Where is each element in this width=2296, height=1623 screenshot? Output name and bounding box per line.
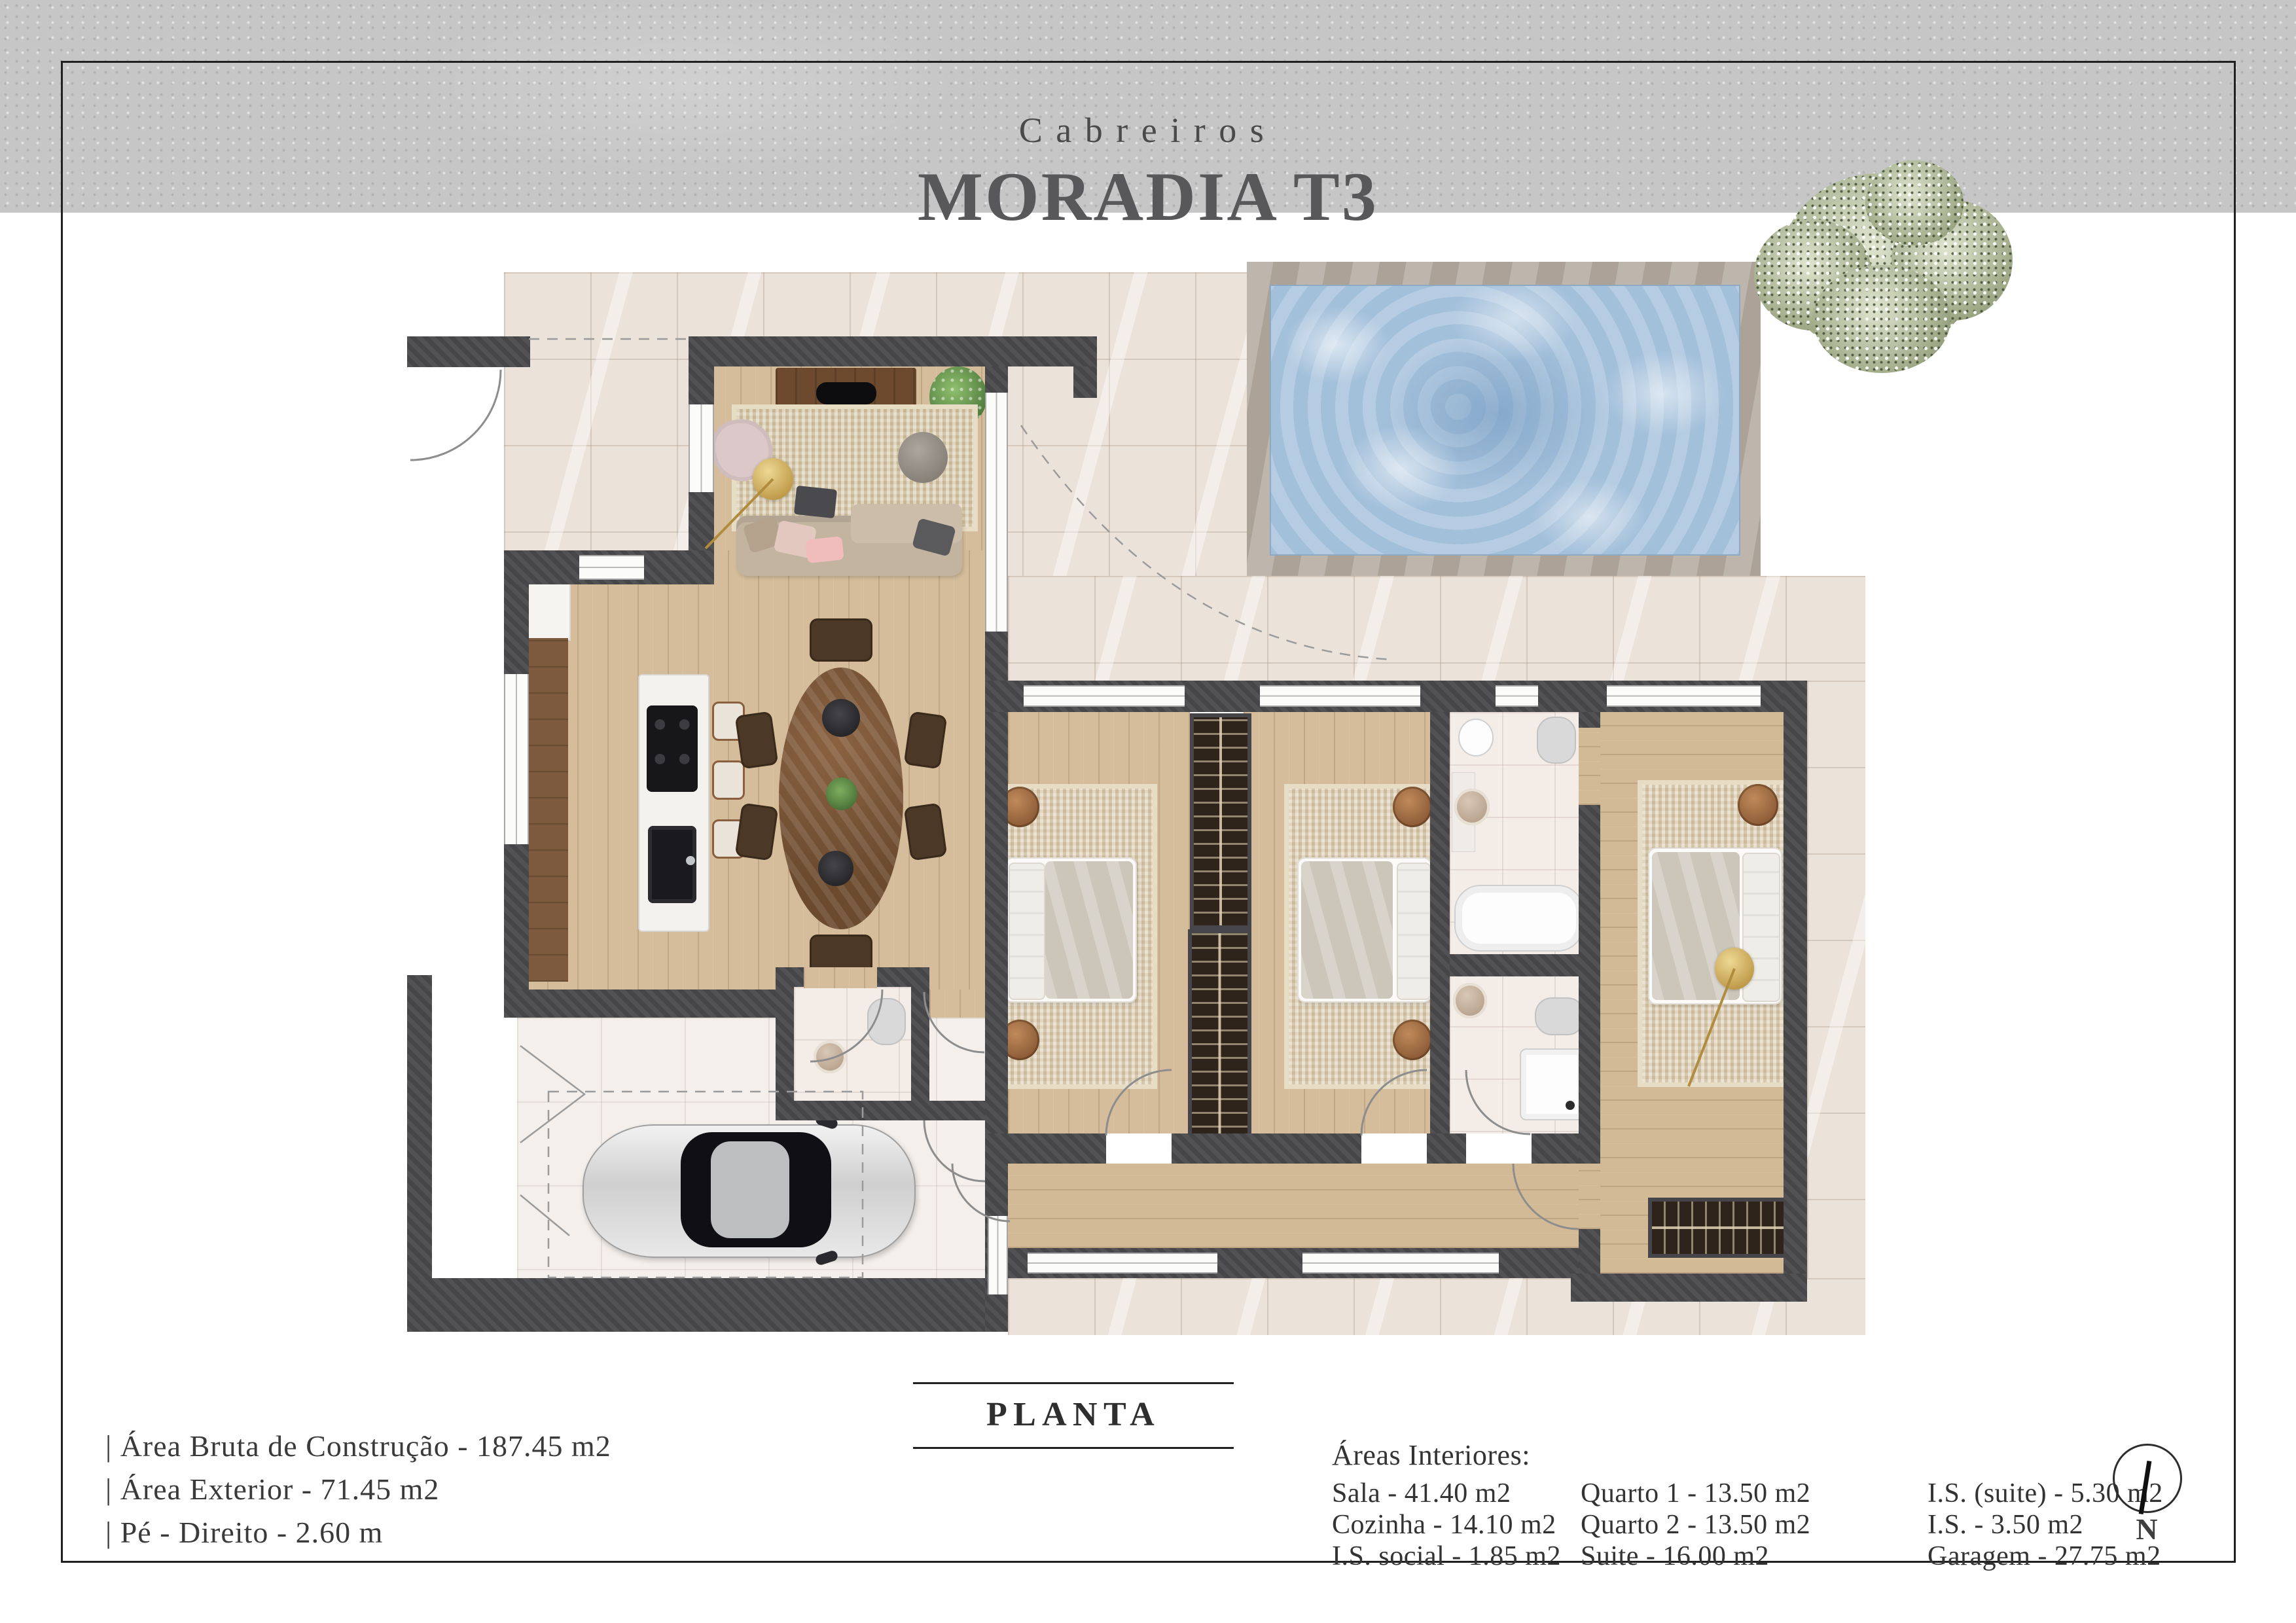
- areas-quarto1: Quarto 1 - 13.50 m2: [1581, 1478, 1810, 1509]
- areas-is-social: I.S. social - 1.85 m2: [1332, 1541, 1561, 1572]
- compass: N: [2113, 1444, 2181, 1548]
- floorplan-page: Cabreiros MORADIA T3 PLANTA | Área Bruta…: [0, 0, 2296, 1623]
- page-frame: [61, 61, 2236, 1563]
- estate-name: Cabreiros: [0, 110, 2296, 151]
- areas-cozinha: Cozinha - 14.10 m2: [1332, 1509, 1556, 1541]
- stat-area-exterior: | Área Exterior - 71.45 m2: [105, 1472, 439, 1507]
- stat-area-bruta: | Área Bruta de Construção - 187.45 m2: [105, 1429, 611, 1463]
- areas-quarto2: Quarto 2 - 13.50 m2: [1581, 1509, 1810, 1541]
- areas-heading: Áreas Interiores:: [1332, 1438, 1530, 1472]
- compass-label: N: [2113, 1512, 2181, 1546]
- areas-suite: Suite - 16.00 m2: [1581, 1541, 1769, 1572]
- areas-is: I.S. - 3.50 m2: [1928, 1509, 2083, 1541]
- stat-pe-direito: | Pé - Direito - 2.60 m: [105, 1515, 383, 1550]
- page-title: MORADIA T3: [0, 157, 2296, 237]
- planta-label: PLANTA: [913, 1384, 1234, 1445]
- areas-sala: Sala - 41.40 m2: [1332, 1478, 1511, 1509]
- planta-label-box: PLANTA: [913, 1382, 1234, 1449]
